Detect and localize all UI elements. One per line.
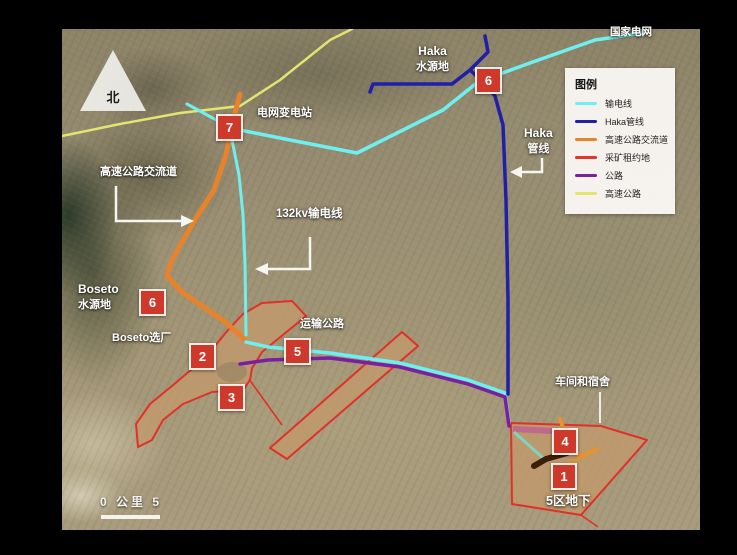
legend: 图例 输电线 Haka管线 高速公路交流道 采矿租约地 公路 高速公路: [565, 68, 675, 214]
legend-item-mining-lease: 采矿租约地: [575, 151, 665, 164]
label-transport-road: 运输公路: [300, 317, 344, 332]
label-zone5: 5区地下: [546, 493, 590, 510]
road-swatch: [575, 174, 597, 178]
label-boseto-water-line2: 水源地: [78, 299, 111, 311]
legend-item-haka-pipeline: Haka管线: [575, 115, 665, 128]
marker-2[interactable]: 2: [189, 343, 216, 370]
label-haka-water-line2: 水源地: [416, 61, 449, 73]
legend-item-interchange: 高速公路交流道: [575, 133, 665, 146]
label-boseto-plant: Boseto选厂: [112, 331, 171, 346]
label-national-grid: 国家电网: [610, 25, 652, 39]
workshop-callout-line: [599, 392, 601, 423]
legend-item-road: 公路: [575, 169, 665, 182]
label-haka-pipeline-line1: Haka: [524, 126, 553, 140]
label-kv-line: 132kv输电线: [276, 207, 342, 223]
scale-label: 0 公里 5: [100, 493, 162, 510]
label-boseto-water: Boseto 水源地: [78, 281, 119, 313]
interchange-swatch: [575, 138, 597, 142]
label-boseto-water-line1: Boseto: [78, 282, 119, 296]
label-haka-pipeline: Haka 管线: [524, 125, 553, 157]
screenshot-frame: 北 国家电网 Haka 水源地 电网变电站 高速公路交流道 132kv输电线 H…: [0, 0, 737, 555]
interchange-arrow: [116, 186, 194, 227]
label-substation: 电网变电站: [257, 106, 312, 121]
kv-line-arrow: [255, 237, 310, 275]
transmission-line-swatch: [575, 102, 597, 106]
label-haka-water-line1: Haka: [418, 44, 447, 58]
legend-title: 图例: [575, 76, 665, 92]
marker-3[interactable]: 3: [218, 384, 245, 411]
label-haka-water: Haka 水源地: [416, 43, 449, 75]
label-interchange: 高速公路交流道: [100, 165, 177, 180]
mining-lease-swatch: [575, 156, 597, 160]
north-arrow: 北: [80, 50, 146, 112]
legend-item-highway: 高速公路: [575, 187, 665, 200]
marker-4[interactable]: 4: [552, 428, 578, 455]
legend-item-transmission: 输电线: [575, 97, 665, 110]
marker-6-top[interactable]: 6: [475, 67, 502, 94]
marker-7[interactable]: 7: [216, 114, 243, 141]
highway-swatch: [575, 192, 597, 196]
haka-pipeline-swatch: [575, 120, 597, 124]
marker-1[interactable]: 1: [551, 463, 577, 490]
north-label: 北: [80, 87, 146, 106]
marker-5[interactable]: 5: [284, 338, 311, 365]
label-haka-pipeline-line2: 管线: [527, 143, 549, 155]
label-workshop: 车间和宿舍: [555, 375, 610, 390]
haka-pipeline-arrow: [510, 158, 542, 178]
scale-bar: [101, 515, 160, 519]
marker-6-left[interactable]: 6: [139, 289, 166, 316]
